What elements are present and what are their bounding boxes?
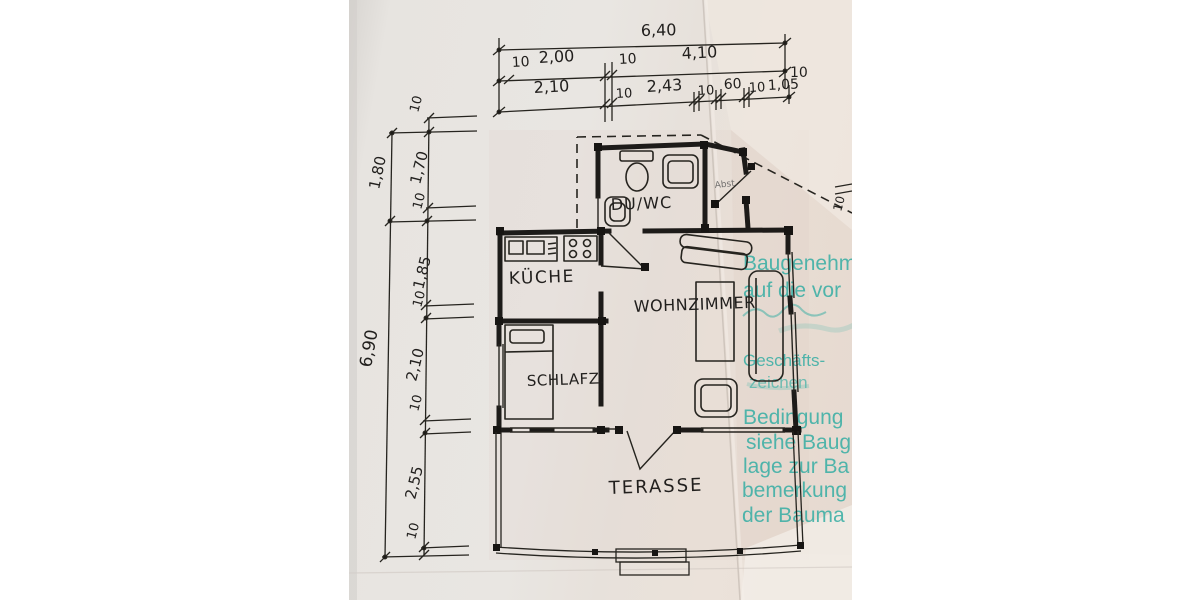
dim-top3-210: 2,10 [533,76,570,97]
dim-top3-10a: 10 [615,86,632,102]
dim-top3-10c: 10 [748,80,765,96]
dim-top2-200: 2,00 [538,46,575,67]
dim-left-210: 2,10 [402,346,428,383]
stamp-line-der-bauma: der Bauma [742,504,845,527]
dim-left-10d: 10 [407,393,426,413]
dim-left-180: 1,80 [365,154,390,190]
dim-left-10e: 10 [404,521,423,541]
dim-left-10a: 10 [407,94,426,114]
stamp-line-lage-zur: lage zur Ba [743,455,850,478]
dim-top2-10b: 10 [618,51,637,68]
room-label-terasse: TERASSE [607,475,703,499]
room-label-duwc: DU/WC [610,193,672,214]
scanned-floorplan-page: { "document": { "type_label": "floor-pla… [0,0,1200,600]
dim-top3-10b: 10 [697,83,714,99]
dim-left-185: 1,85 [409,254,435,291]
dim-top3-60: 60 [723,76,742,93]
dim-left-255: 2,55 [401,464,427,501]
dim-top3-105: 1,05 [767,76,799,94]
stamp-line-bemerkung: bemerkung [742,479,847,502]
dim-total-width: 6,40 [641,20,677,40]
floorplan-drawing: Baugenehm auf die vor Geschäfts- zeichen… [349,0,852,600]
room-label-kueche: KÜCHE [508,265,575,289]
dim-top2-10a: 10 [511,54,530,71]
floorplan-photo: Baugenehm auf die vor Geschäfts- zeichen… [349,0,852,600]
dim-top3-243: 2,43 [646,75,683,96]
dim-top2-410: 4,10 [681,42,718,63]
dimension-lines-left [380,113,477,562]
dim-left-690: 6,90 [356,328,382,369]
room-label-schlafz: SCHLAFZ. [527,369,606,390]
